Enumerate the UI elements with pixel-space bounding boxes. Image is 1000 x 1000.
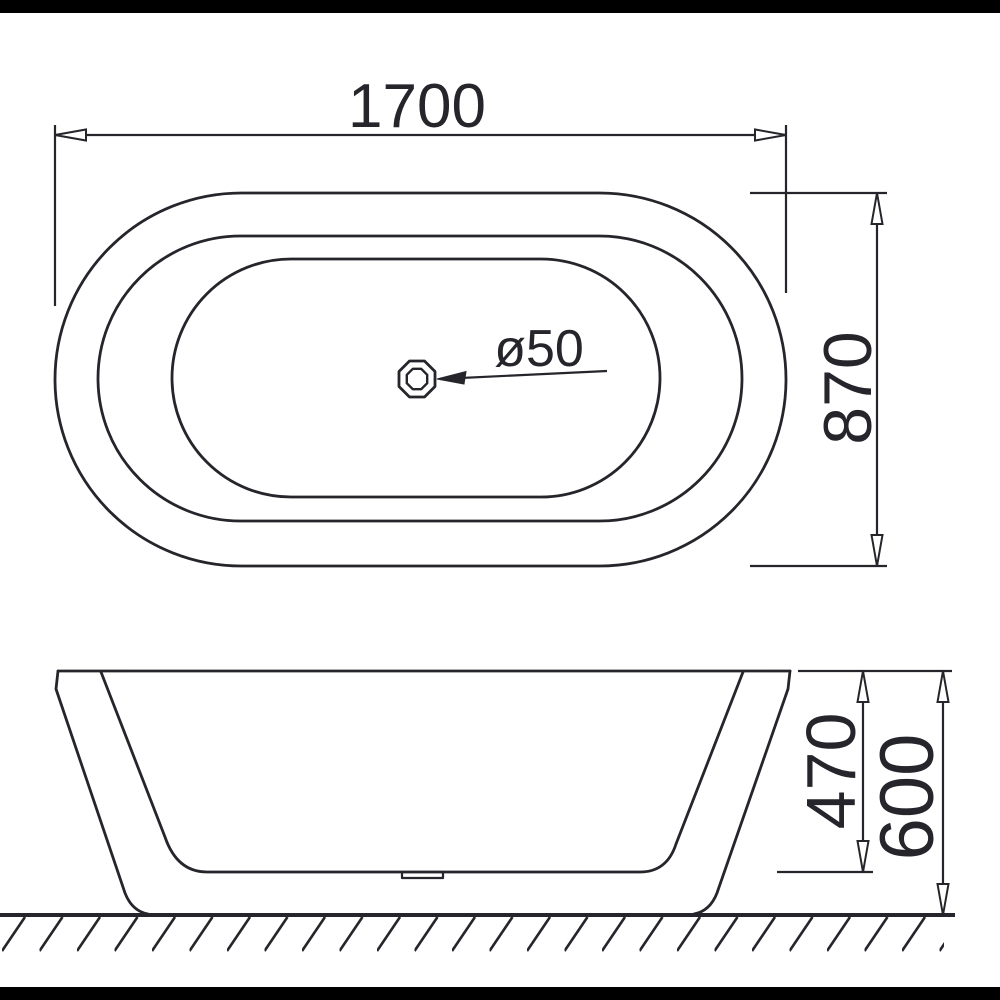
arrowhead-right <box>755 130 786 141</box>
letterbox-top <box>0 0 1000 13</box>
technical-drawing: ø50 1700 870 470 <box>0 0 1000 1000</box>
arrowhead-top <box>872 193 883 224</box>
tub-outer-wall-left <box>56 671 148 914</box>
tub-outer-wall-right <box>694 671 790 914</box>
tub-inner-profile <box>101 672 743 872</box>
drain-outer <box>399 361 435 397</box>
leader-arrowhead <box>437 372 466 385</box>
dim-label-width: 870 <box>810 331 886 444</box>
arrowhead-bottom <box>938 884 949 915</box>
drawing-canvas: ø50 1700 870 470 <box>0 0 1000 1000</box>
tub-outer-rim <box>55 193 786 566</box>
arrowhead-top <box>938 671 949 702</box>
dimension-length: 1700 <box>55 72 786 306</box>
plan-view <box>55 193 786 566</box>
dimension-width: 870 <box>750 193 887 566</box>
arrowhead-top <box>858 671 869 702</box>
tub-basin-edge <box>172 259 660 497</box>
tub-inner-rim <box>98 236 742 521</box>
ground-hatching <box>0 917 944 954</box>
dimension-height: 600 <box>865 671 950 915</box>
dim-label-length: 1700 <box>348 72 486 141</box>
letterbox-bottom <box>0 987 1000 1000</box>
drain-inner <box>407 369 427 389</box>
drain-callout: ø50 <box>437 320 607 384</box>
drain-recess <box>402 872 443 878</box>
dim-label-drain: ø50 <box>494 320 584 378</box>
dim-label-depth: 470 <box>792 713 870 830</box>
dim-label-height: 600 <box>865 734 950 861</box>
arrowhead-left <box>55 130 86 141</box>
arrowhead-bottom <box>872 535 883 566</box>
